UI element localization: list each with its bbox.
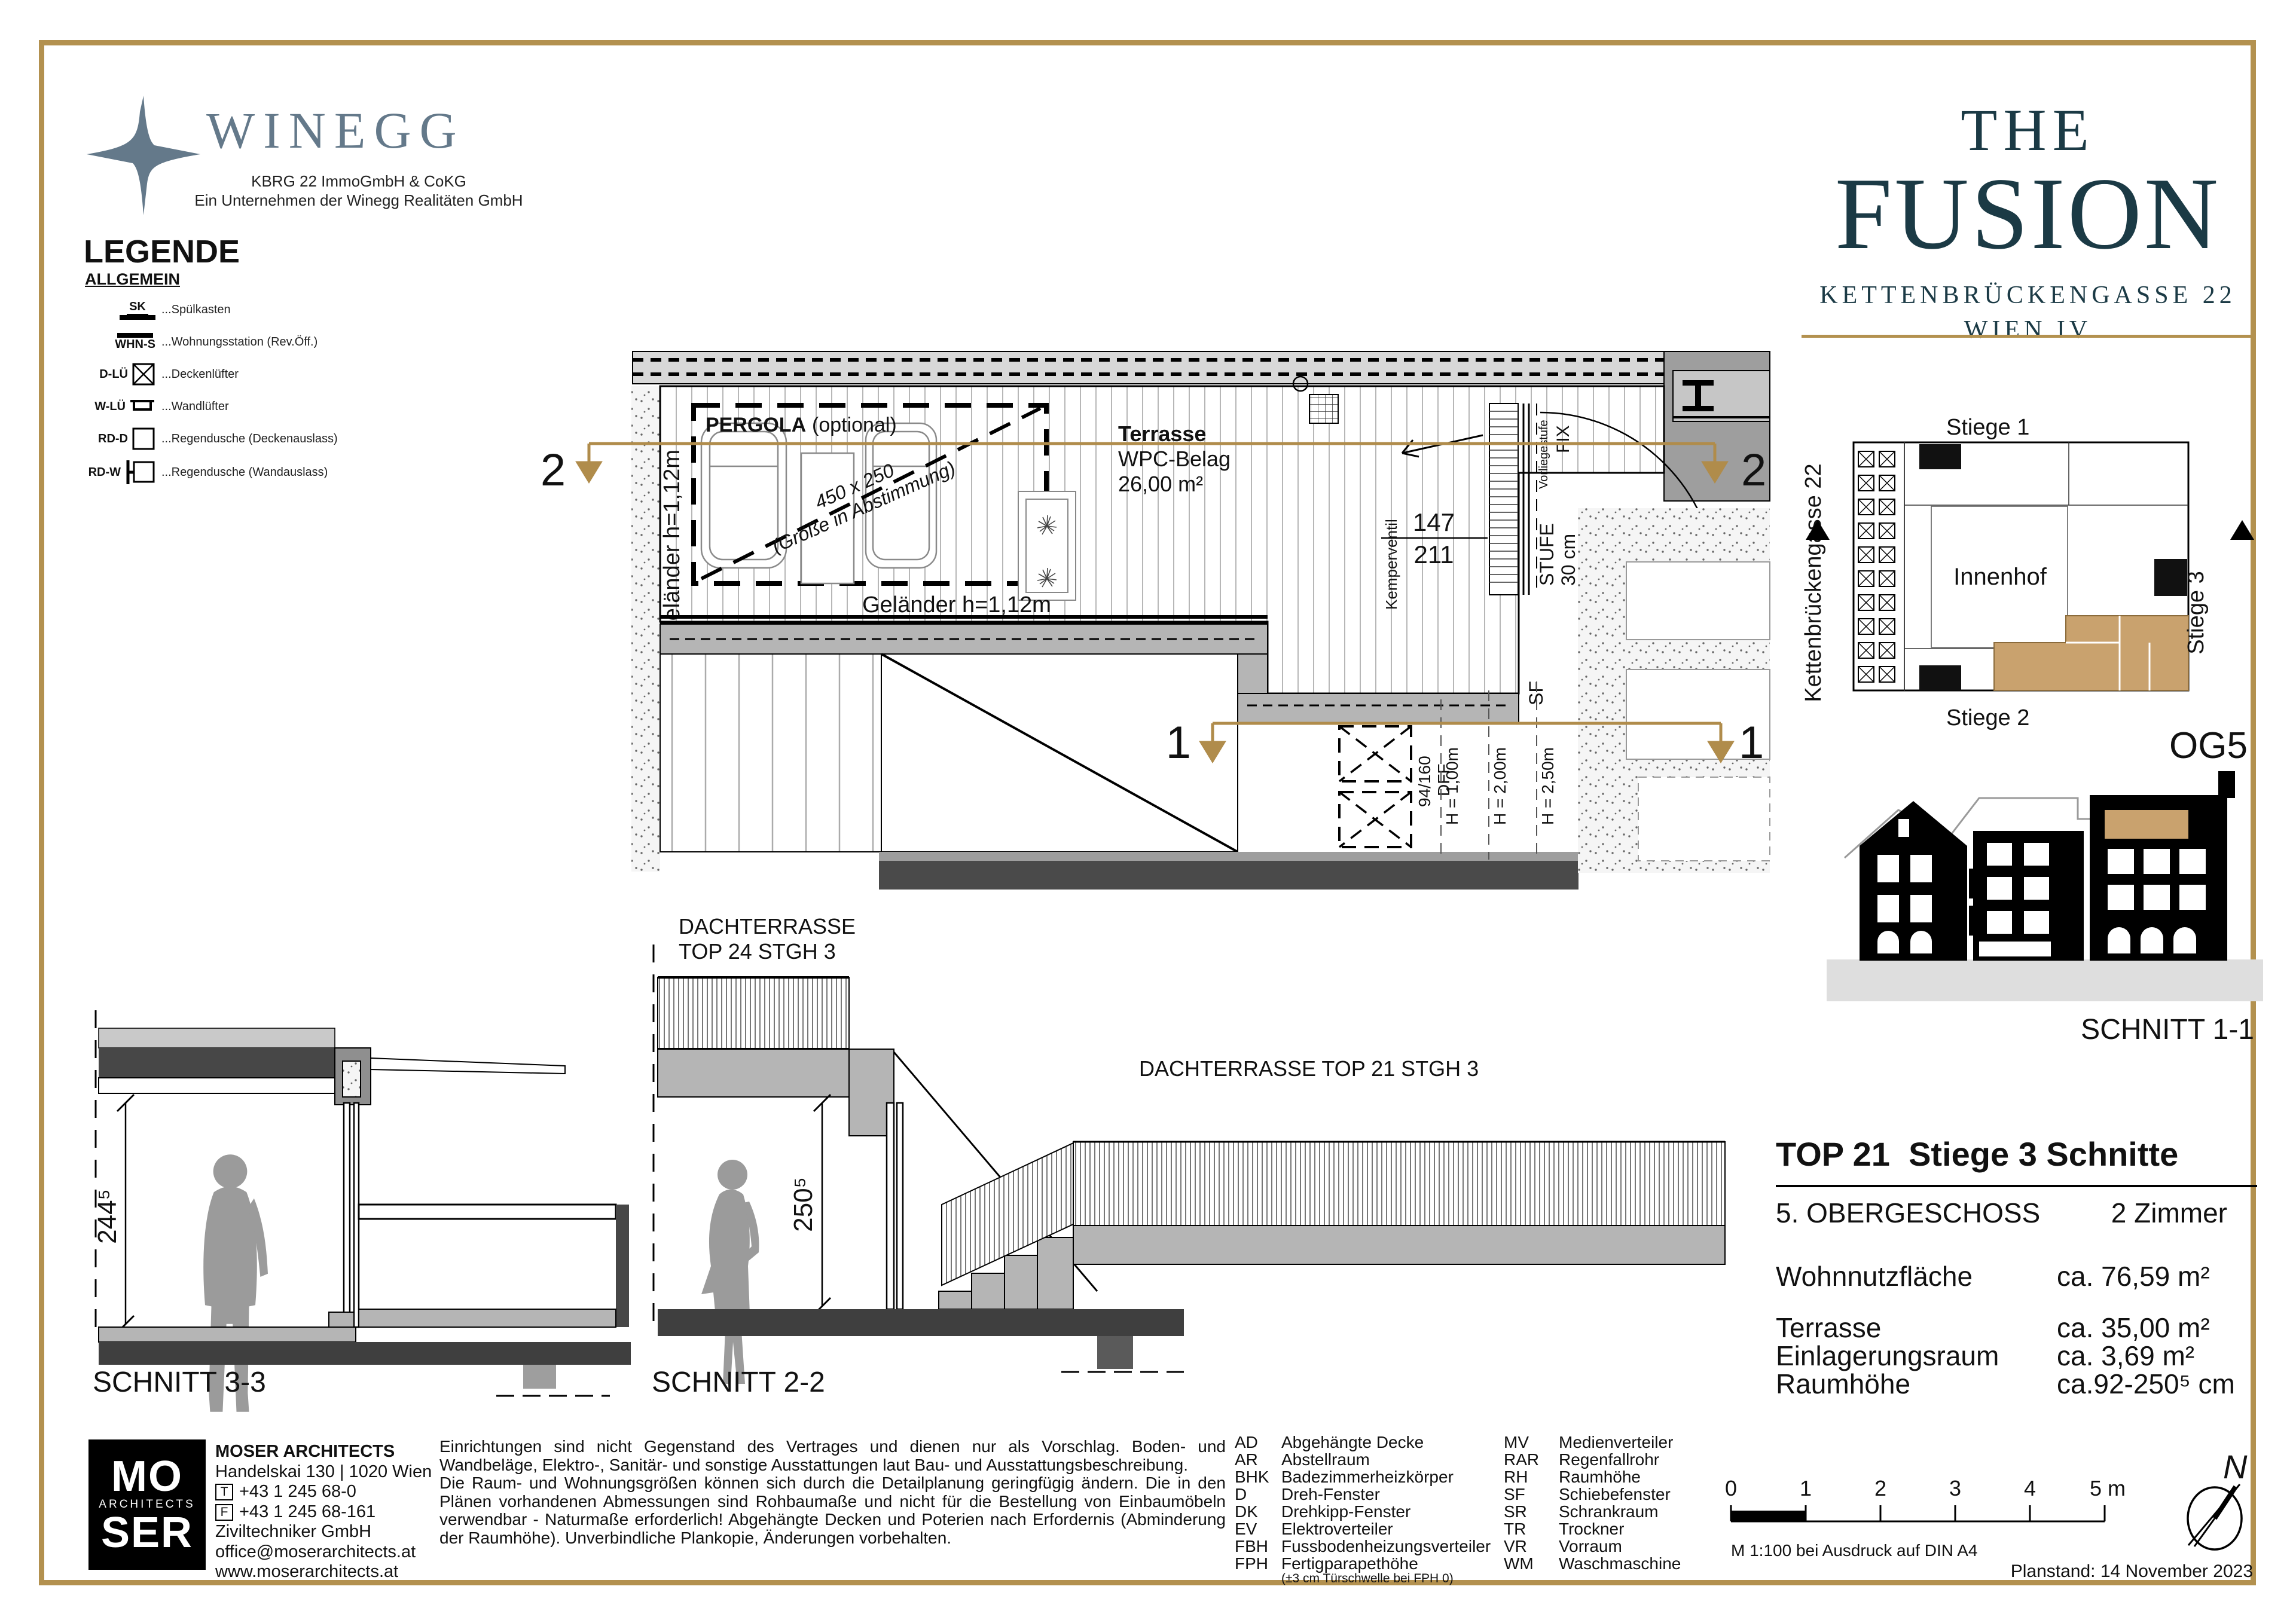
section-lines-overlay: 2 2 1 1 xyxy=(0,0,2296,1623)
section-marker-2-right: 2 xyxy=(1741,445,1766,496)
section-marker-2-left: 2 xyxy=(541,445,566,496)
plan-sheet: WINEGG KBRG 22 ImmoGmbH & CoKG Ein Unter… xyxy=(0,0,2296,1623)
section-marker-1-right: 1 xyxy=(1739,717,1764,768)
section-marker-1-left: 1 xyxy=(1166,717,1191,768)
